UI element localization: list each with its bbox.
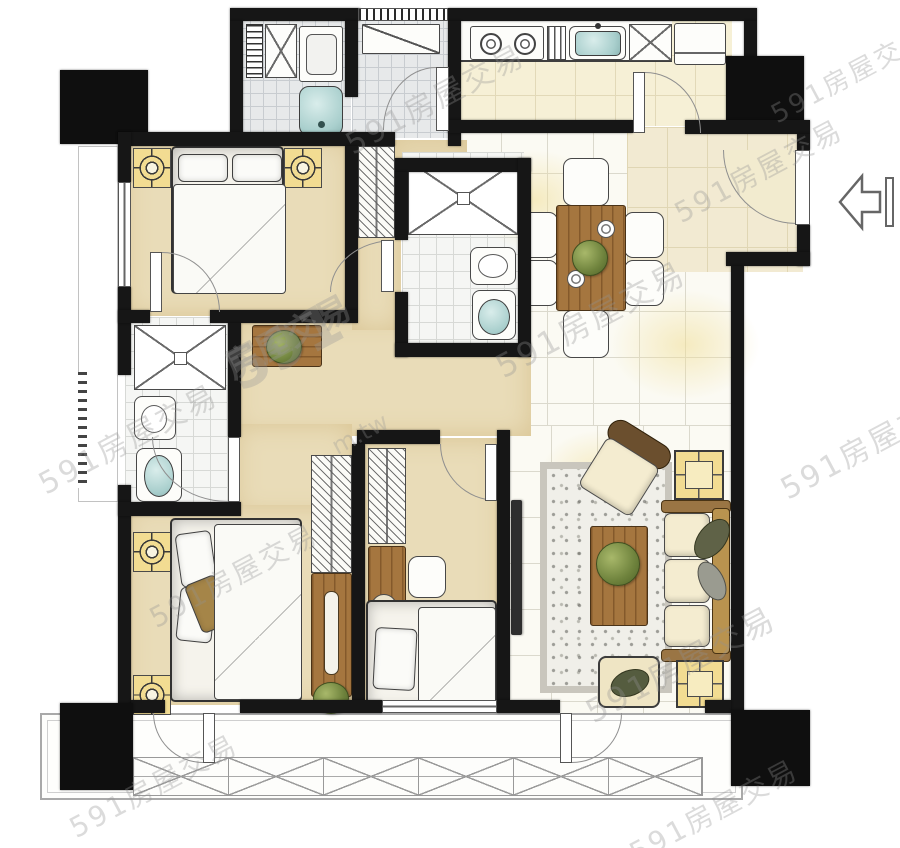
hall-console-plant xyxy=(266,330,302,364)
stove-burner xyxy=(514,33,536,55)
refrigerator xyxy=(674,23,726,65)
guest-washbasin xyxy=(470,247,516,285)
wall-guest-bath-west-north xyxy=(395,172,408,240)
planter-x-cell xyxy=(134,758,229,795)
dining-chair xyxy=(624,260,664,306)
sofa xyxy=(660,500,732,662)
floor-plan-canvas: 591房屋交易 591房屋交易 591房屋交易 591房屋交易 591房屋交易 … xyxy=(0,0,900,848)
dining-chair xyxy=(563,158,609,206)
ottoman-pillow xyxy=(607,664,653,702)
wall-right-top-connector xyxy=(744,21,757,60)
nightstand-lamp xyxy=(133,148,171,188)
sofa-cushion xyxy=(664,605,710,647)
living-balcony-door-leaf xyxy=(560,713,572,763)
bedroom-2-single-bed xyxy=(366,600,497,711)
planter-x-cell xyxy=(609,758,702,795)
toilet-bowl xyxy=(478,299,510,335)
wall-bedroom2-east xyxy=(497,430,510,700)
kitchen-sink xyxy=(569,26,626,60)
planter-x-cell xyxy=(419,758,514,795)
wall-master-south-east xyxy=(240,700,382,713)
washing-machine xyxy=(299,26,343,82)
bedroom-1-closet xyxy=(358,146,395,238)
wall-guest-bath-south xyxy=(395,343,531,357)
dining-table-plant xyxy=(572,240,608,276)
guest-toilet xyxy=(472,290,516,340)
master-double-bed xyxy=(170,518,302,702)
bedroom-2-wardrobe xyxy=(368,448,406,544)
ottoman xyxy=(598,656,660,708)
master-shower xyxy=(134,325,226,390)
master-dresser xyxy=(311,573,352,697)
wall-left-2 xyxy=(118,287,131,375)
bedroom-2-south-window xyxy=(382,700,497,713)
nightstand-lamp xyxy=(133,532,171,572)
wall-laundry-west xyxy=(230,21,243,140)
bedroom-2-nightstand xyxy=(408,556,446,598)
bedroom-1-door-leaf xyxy=(150,252,162,312)
basin-bowl xyxy=(141,405,167,433)
side-table xyxy=(674,450,724,500)
bathtub xyxy=(299,86,343,136)
planter-x-cell xyxy=(514,758,609,795)
wall-top-left xyxy=(230,8,360,21)
wall-left-3 xyxy=(118,485,131,713)
wall-master-bath-south xyxy=(118,502,241,516)
planter-x-cell xyxy=(324,758,419,795)
wall-guest-bath-east xyxy=(518,158,531,357)
guest-bath-door-leaf xyxy=(381,240,394,292)
master-bath-door-leaf xyxy=(228,437,240,502)
balcony-planter xyxy=(133,757,703,796)
wall-entry-south xyxy=(726,252,810,266)
master-balcony-door-leaf xyxy=(203,713,215,763)
basin-bowl xyxy=(478,254,508,278)
vestibule-counter xyxy=(362,24,440,54)
wall-left-1 xyxy=(118,132,131,182)
fridge-door-seam xyxy=(675,52,725,54)
wall-living-east xyxy=(731,266,744,713)
wall-top-kitchen xyxy=(448,8,757,21)
watermark: 591房屋交易 xyxy=(771,376,900,508)
bed-pillow xyxy=(232,154,282,182)
wall-laundry-divider xyxy=(345,21,358,97)
coffee-table-plant xyxy=(596,542,640,586)
dining-chair xyxy=(563,310,609,358)
dining-chair xyxy=(624,212,664,258)
laundry-cabinet xyxy=(265,24,297,78)
column-bottom-right xyxy=(731,710,810,786)
kitchen-door-leaf xyxy=(633,72,645,133)
storage-ladder-shelf xyxy=(246,24,263,78)
wall-bedroom2-north xyxy=(357,430,440,444)
wall-bedroom1-north xyxy=(118,132,395,146)
shower-drain xyxy=(174,352,187,365)
bedroom-1-window xyxy=(118,182,131,287)
entry-arrow-icon xyxy=(836,166,896,238)
wall-entry-jamb-north xyxy=(797,134,810,150)
vestibule-door-leaf xyxy=(436,67,449,131)
wall-bedroom2-west xyxy=(352,444,365,700)
stove xyxy=(470,26,544,60)
place-setting-plate xyxy=(597,220,615,238)
wall-master-bath-east xyxy=(228,323,241,437)
wall-kitchen-south-west xyxy=(448,120,633,133)
wall-bedroom1-south-east xyxy=(210,310,358,323)
wall-living-south-east xyxy=(705,700,731,713)
bed-pillow xyxy=(178,154,228,182)
wall-kitchen-south-east xyxy=(685,120,810,134)
wall-living-south-west xyxy=(497,700,560,713)
wall-tv xyxy=(511,500,522,635)
bedroom-2-door-leaf xyxy=(485,444,497,501)
master-washbasin xyxy=(134,396,176,440)
vestibule-window xyxy=(358,8,448,21)
drainboard xyxy=(547,26,566,60)
entry-door-leaf xyxy=(795,150,810,225)
bed-duvet xyxy=(214,524,302,700)
planter-x-cell xyxy=(229,758,324,795)
dresser-handle-slot xyxy=(324,591,339,675)
bed-pillow xyxy=(372,627,417,691)
wall-bedroom1-south-west xyxy=(118,310,150,323)
master-wardrobe xyxy=(311,455,352,573)
shower-drain xyxy=(457,192,470,205)
nightstand-lamp xyxy=(284,148,322,188)
stove-burner xyxy=(480,33,502,55)
washer-drum xyxy=(306,34,337,75)
column-bottom-left xyxy=(60,703,133,790)
kitchen-x-cabinet xyxy=(629,24,672,61)
wall-guest-bath-north xyxy=(395,158,531,172)
louver-vent-strip xyxy=(78,372,87,488)
sink-faucet xyxy=(595,23,601,29)
bed-duvet xyxy=(418,607,496,707)
sink-bowl xyxy=(575,31,621,56)
tub-drain xyxy=(318,121,325,128)
wall-master-south-west xyxy=(131,700,165,713)
